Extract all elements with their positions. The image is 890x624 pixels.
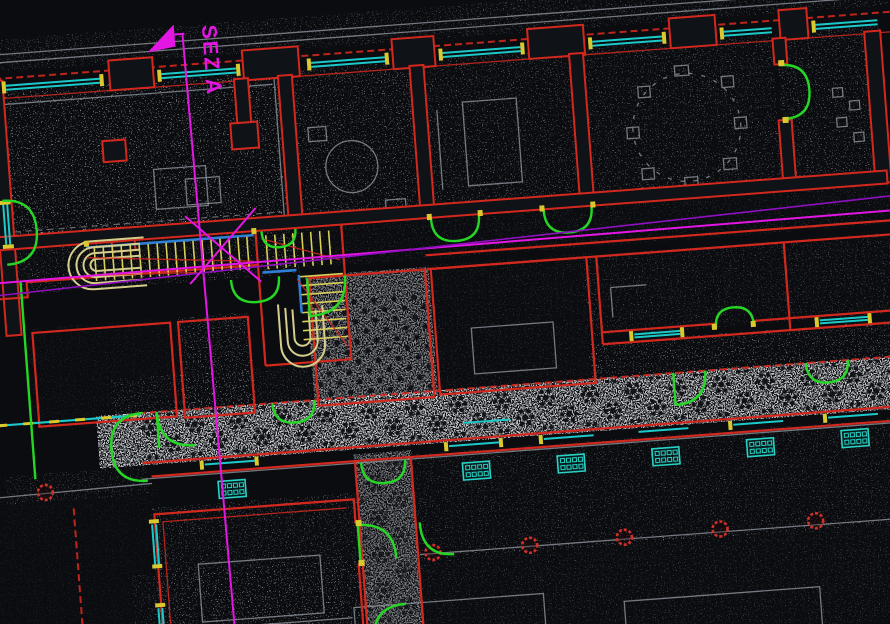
floor-grille (557, 454, 585, 473)
cad-canvas[interactable]: SEZ A (0, 0, 890, 624)
floor-plan-drawing: SEZ A (0, 0, 890, 624)
floor-grille (652, 447, 680, 466)
floor-grille (746, 438, 774, 457)
floor-grille (841, 429, 869, 448)
floor-grille (462, 461, 490, 480)
